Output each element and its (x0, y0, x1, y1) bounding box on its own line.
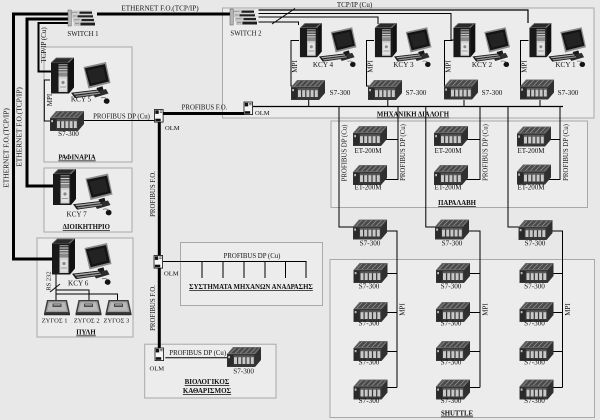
svg-text:MPI: MPI (291, 60, 299, 73)
svg-text:PROFIBUS F.O.: PROFIBUS F.O. (150, 171, 157, 217)
svg-text:S7-300: S7-300 (58, 130, 79, 138)
svg-text:PROFIBUS DP (Cu): PROFIBUS DP (Cu) (224, 253, 281, 260)
svg-text:KCY 5: KCY 5 (71, 96, 92, 104)
svg-text:S7-300: S7-300 (524, 359, 545, 367)
svg-text:S7-300: S7-300 (558, 89, 579, 97)
svg-text:PROFIBUS DP (Cu): PROFIBUS DP (Cu) (400, 124, 407, 181)
svg-text:ET-200M: ET-200M (518, 147, 546, 155)
svg-text:OLM: OLM (150, 366, 165, 373)
svg-text:MPI: MPI (482, 303, 490, 316)
svg-text:ΖΥΓΟΣ 1: ΖΥΓΟΣ 1 (42, 318, 68, 325)
svg-text:OLM: OLM (164, 271, 179, 278)
svg-text:S7-300: S7-300 (524, 283, 545, 291)
svg-text:S7-300: S7-300 (441, 283, 462, 291)
svg-text:ΜΗΧΑΝΙΚΗ ΔΙΑΛΟΓΗ: ΜΗΧΑΝΙΚΗ ΔΙΑΛΟΓΗ (377, 112, 450, 119)
svg-text:ET-200M: ET-200M (435, 184, 463, 192)
svg-text:ET-200M: ET-200M (435, 147, 463, 155)
svg-text:ETHERNET F.O.(TCP/IP): ETHERNET F.O.(TCP/IP) (2, 108, 11, 188)
svg-text:KCY 6: KCY 6 (68, 280, 89, 288)
svg-text:S7-300: S7-300 (360, 240, 381, 248)
svg-text:S7-300: S7-300 (330, 89, 351, 97)
svg-text:PROFIBUS DP (Cu): PROFIBUS DP (Cu) (563, 124, 570, 181)
svg-text:S7-300: S7-300 (359, 397, 380, 405)
svg-text:ΡΑΦΙΝΑΡΙΑ: ΡΑΦΙΝΑΡΙΑ (58, 155, 95, 162)
svg-text:OLM: OLM (255, 110, 270, 117)
svg-text:MPI: MPI (46, 93, 54, 106)
svg-text:TCP/IP (Cu): TCP/IP (Cu) (337, 1, 373, 9)
svg-text:S7-300: S7-300 (359, 320, 380, 328)
svg-text:S7-300: S7-300 (442, 240, 463, 248)
svg-text:MPI: MPI (521, 60, 529, 73)
svg-text:PROFIBUS DP (Cu): PROFIBUS DP (Cu) (342, 125, 349, 182)
svg-text:ET-200M: ET-200M (355, 147, 383, 155)
svg-text:PROFIBUS DP (Cu): PROFIBUS DP (Cu) (93, 114, 150, 121)
svg-text:ETHERNET F.O.(TCP/IP): ETHERNET F.O.(TCP/IP) (121, 5, 199, 13)
svg-text:SWITCH 2: SWITCH 2 (230, 31, 262, 38)
svg-text:S7-300: S7-300 (406, 89, 427, 97)
svg-text:S7-300: S7-300 (524, 320, 545, 328)
svg-text:ET-200M: ET-200M (518, 184, 546, 192)
svg-text:S7-300: S7-300 (441, 359, 462, 367)
svg-text:S7-300: S7-300 (233, 368, 254, 376)
svg-text:S7-300: S7-300 (441, 320, 462, 328)
svg-text:ETHERNET F.O.(TCP/IP): ETHERNET F.O.(TCP/IP) (15, 87, 24, 167)
svg-text:ΔΙΟΙΚΗΤΗΡΙΟ: ΔΙΟΙΚΗΤΗΡΙΟ (63, 224, 110, 231)
svg-text:ΠΑΡΑΛΑΒΗ: ΠΑΡΑΛΑΒΗ (438, 200, 477, 207)
svg-text:PROFIBUS F.O.: PROFIBUS F.O. (182, 105, 228, 112)
svg-text:ΖΥΓΟΣ 2: ΖΥΓΟΣ 2 (74, 318, 100, 325)
svg-text:ΠΥΛΗ: ΠΥΛΗ (76, 330, 96, 337)
svg-text:S7-300: S7-300 (482, 89, 503, 97)
svg-text:S7-300: S7-300 (524, 397, 545, 405)
svg-text:KCY 3: KCY 3 (393, 61, 414, 69)
svg-text:RS 232: RS 232 (46, 271, 53, 290)
svg-text:ΒΙΟΛΟΓΙΚΟΣ: ΒΙΟΛΟΓΙΚΟΣ (185, 378, 230, 386)
svg-text:PROFIBUS DP (Cu): PROFIBUS DP (Cu) (483, 124, 490, 181)
svg-text:SWITCH 1: SWITCH 1 (67, 31, 98, 38)
svg-text:KCY 7: KCY 7 (66, 211, 87, 219)
svg-text:KCY 1: KCY 1 (555, 61, 576, 69)
svg-text:MPI: MPI (399, 303, 407, 316)
svg-text:ΚΑΘΑΡΙΣΜΟΣ: ΚΑΘΑΡΙΣΜΟΣ (183, 387, 232, 395)
svg-text:OLM: OLM (165, 125, 180, 132)
svg-text:MPI: MPI (367, 60, 375, 73)
svg-text:S7-300: S7-300 (441, 397, 462, 405)
svg-text:ΣΥΣΤΗΜΑΤΑ ΜΗΧΑΝΩΝ ΑΝΑΔΡΑΣΗΣ: ΣΥΣΤΗΜΑΤΑ ΜΗΧΑΝΩΝ ΑΝΑΔΡΑΣΗΣ (189, 284, 313, 291)
svg-text:ET-200M: ET-200M (355, 184, 383, 192)
svg-text:KCY 2: KCY 2 (472, 61, 493, 69)
svg-text:KCY 4: KCY 4 (313, 61, 334, 69)
svg-text:MPI: MPI (564, 303, 572, 316)
svg-text:PROFIBUS DP (Cu): PROFIBUS DP (Cu) (169, 350, 226, 357)
svg-text:MPI: MPI (445, 60, 453, 73)
svg-text:S7-300: S7-300 (359, 283, 380, 291)
svg-text:S7-300: S7-300 (525, 240, 546, 248)
svg-text:ΖΥΓΟΣ 3: ΖΥΓΟΣ 3 (104, 318, 130, 325)
svg-text:TCP/IP (Cu): TCP/IP (Cu) (40, 27, 48, 63)
svg-text:SHUTTLE: SHUTTLE (441, 411, 474, 418)
svg-text:PROFIBUS F.O.: PROFIBUS F.O. (150, 285, 157, 331)
svg-text:S7-300: S7-300 (359, 359, 380, 367)
